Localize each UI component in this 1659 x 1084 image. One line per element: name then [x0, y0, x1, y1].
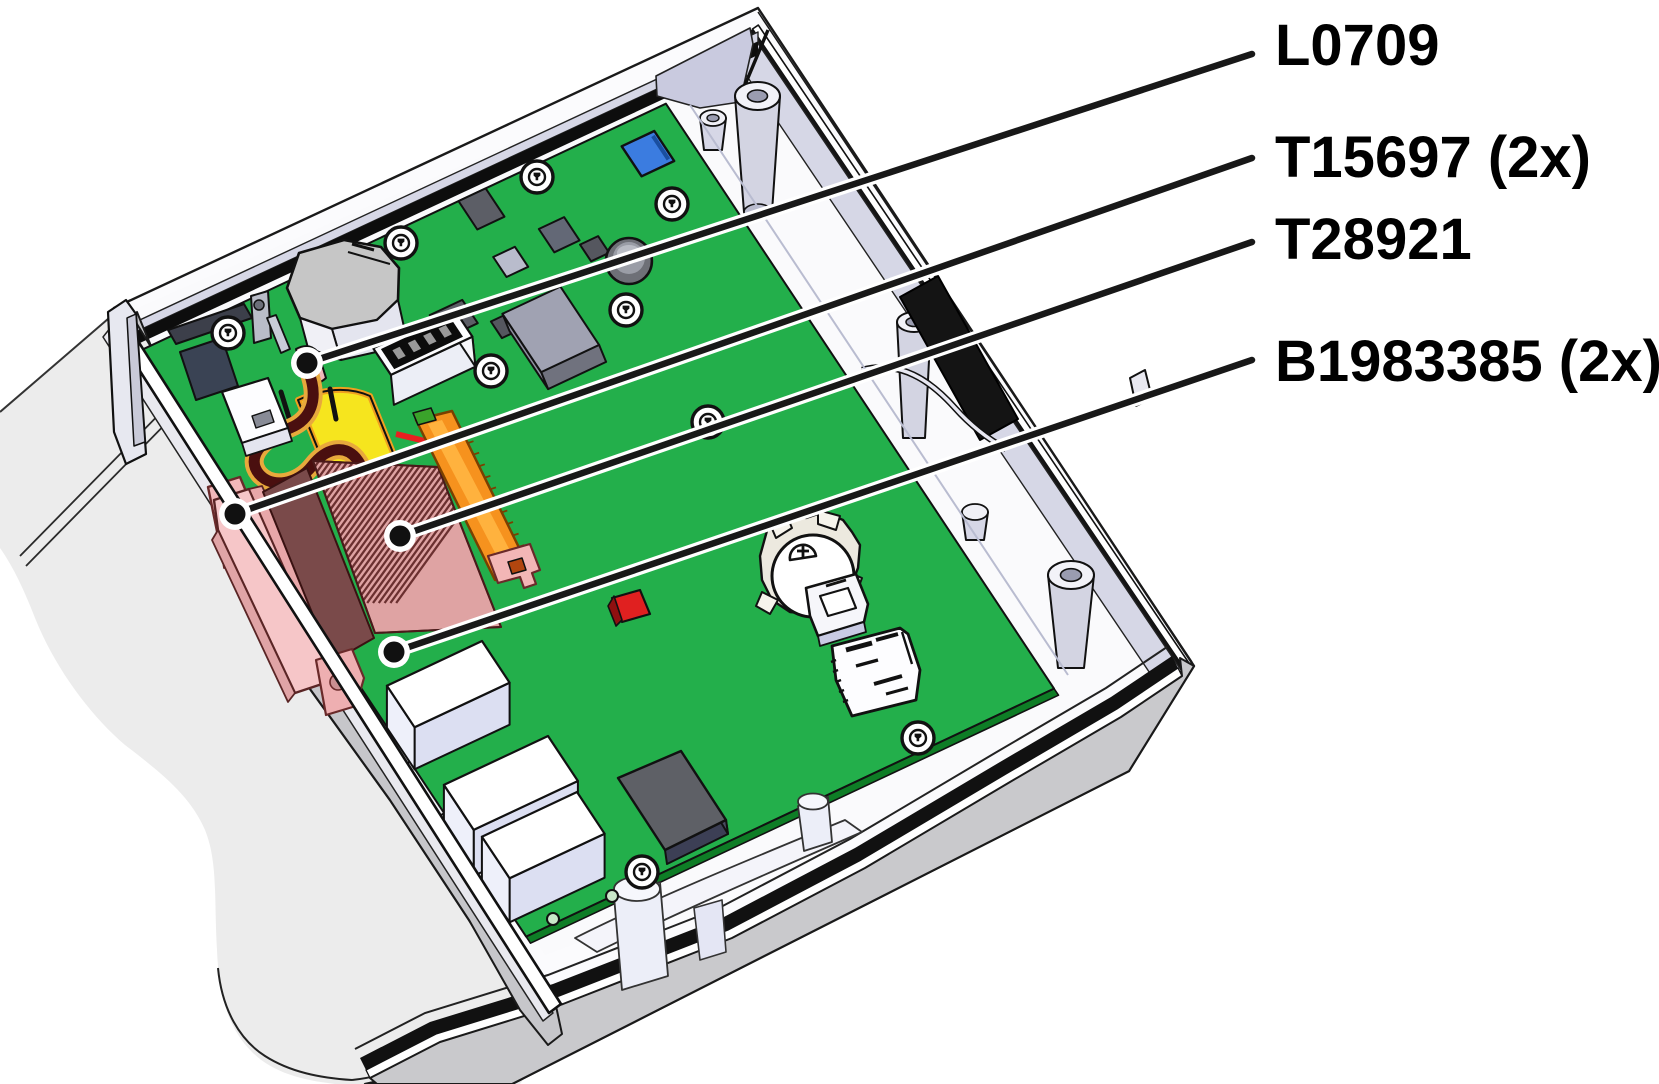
svg-text:B1983385 (2x): B1983385 (2x) [1275, 329, 1659, 394]
svg-text:T28921: T28921 [1275, 207, 1472, 272]
svg-text:T15697 (2x): T15697 (2x) [1275, 125, 1591, 190]
svg-text:L0709: L0709 [1275, 13, 1439, 78]
